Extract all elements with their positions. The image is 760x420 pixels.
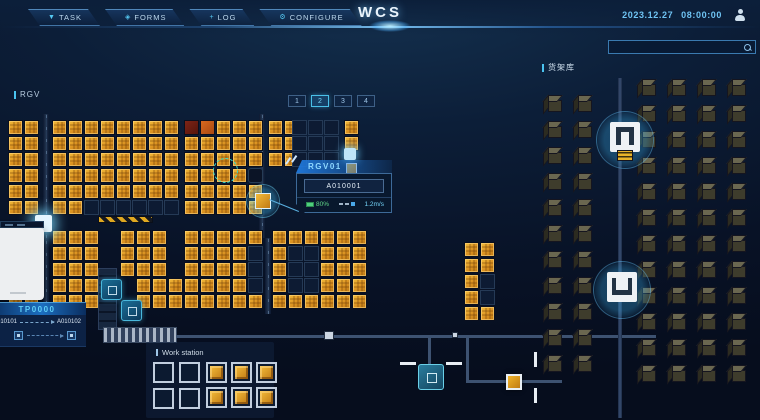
time-text: 08:00:00 <box>681 10 722 20</box>
storage-cell-occupied[interactable] <box>136 246 151 261</box>
shelf-bin <box>642 188 656 200</box>
storage-cell-occupied[interactable] <box>464 242 479 257</box>
storage-cell-occupied[interactable] <box>84 136 99 151</box>
storage-cell-occupied[interactable] <box>68 278 83 293</box>
storage-cell-occupied[interactable] <box>100 184 115 199</box>
shelf-bin <box>642 240 656 252</box>
storage-cell-occupied[interactable] <box>116 136 131 151</box>
shelf-bin <box>548 308 562 320</box>
shelf-bin <box>672 370 686 382</box>
storage-cell-empty[interactable] <box>292 136 307 151</box>
storage-cell-occupied[interactable] <box>24 120 39 135</box>
storage-cell-occupied[interactable] <box>200 230 215 245</box>
workstation-slot-empty[interactable] <box>153 362 174 383</box>
page-button-4[interactable]: 4 <box>357 95 375 107</box>
storage-cell-occupied[interactable] <box>216 120 231 135</box>
shelf-bin <box>732 84 746 96</box>
storage-cell-occupied[interactable] <box>68 262 83 277</box>
storage-cell-occupied[interactable] <box>84 168 99 183</box>
info-card <box>0 228 44 300</box>
storage-cell-occupied[interactable] <box>480 258 495 273</box>
shelf-bin <box>578 256 592 268</box>
shelf-bin <box>702 136 716 148</box>
shelf-bin <box>578 126 592 138</box>
storage-cell-occupied[interactable] <box>304 230 319 245</box>
storage-cell-empty[interactable] <box>248 278 263 293</box>
storage-cell-occupied[interactable] <box>320 278 335 293</box>
map-pagination: 1234 <box>288 95 375 107</box>
storage-cell-alert-orange[interactable] <box>200 120 215 135</box>
station-icon[interactable] <box>67 331 76 340</box>
shelf-bin <box>578 360 592 372</box>
shelf-bin <box>702 292 716 304</box>
storage-cell-occupied[interactable] <box>248 152 263 167</box>
storage-cell-occupied[interactable] <box>272 246 287 261</box>
storage-cell-occupied[interactable] <box>200 278 215 293</box>
storage-cell-occupied[interactable] <box>68 168 83 183</box>
storage-cell-occupied[interactable] <box>52 230 67 245</box>
battery-value: 80% <box>316 201 329 208</box>
shelf-bin <box>548 230 562 242</box>
pallet-device-icon[interactable] <box>506 374 522 390</box>
storage-cell-occupied[interactable] <box>216 230 231 245</box>
storage-cell-occupied[interactable] <box>232 230 247 245</box>
workstation-slot-occupied[interactable] <box>206 387 227 408</box>
storage-cell-occupied[interactable] <box>52 262 67 277</box>
storage-cell-occupied[interactable] <box>164 136 179 151</box>
storage-cell-occupied[interactable] <box>232 184 247 199</box>
storage-cell-empty[interactable] <box>132 200 147 215</box>
log-icon: + <box>209 14 213 21</box>
storage-cell-occupied[interactable] <box>68 200 83 215</box>
storage-cell-occupied[interactable] <box>52 120 67 135</box>
tp-panel: TP0000 A010101 A010102 <box>0 302 86 347</box>
storage-cell-empty[interactable] <box>248 246 263 261</box>
storage-cell-occupied[interactable] <box>200 200 215 215</box>
stacker-lift-icon[interactable] <box>610 122 640 152</box>
mini-device-icon[interactable] <box>344 148 356 160</box>
storage-cell-occupied[interactable] <box>120 230 135 245</box>
storage-cell-occupied[interactable] <box>336 230 351 245</box>
station-icon[interactable] <box>14 331 23 340</box>
boundary-dash <box>534 388 537 403</box>
tp-to: A010102 <box>57 319 81 325</box>
storage-cell-occupied[interactable] <box>8 168 23 183</box>
transfer-device-icon[interactable] <box>121 300 142 321</box>
shelf-area-label: 货架库 <box>542 62 575 73</box>
storage-cell-occupied[interactable] <box>100 120 115 135</box>
storage-cell-occupied[interactable] <box>288 294 303 309</box>
shelf-bin <box>702 370 716 382</box>
rgv-vehicle-icon[interactable] <box>255 193 271 209</box>
storage-cell-occupied[interactable] <box>148 136 163 151</box>
storage-cell-occupied[interactable] <box>52 184 67 199</box>
storage-cell-occupied[interactable] <box>52 136 67 151</box>
rgv-popup-title: RGV01 <box>308 162 342 171</box>
storage-cell-empty[interactable] <box>164 200 179 215</box>
storage-cell-occupied[interactable] <box>100 152 115 167</box>
tab-forms[interactable]: ◈FORMS <box>105 9 184 26</box>
shelf-bin <box>672 214 686 226</box>
storage-cell-occupied[interactable] <box>216 200 231 215</box>
hazard-stripe <box>98 216 153 223</box>
storage-cell-occupied[interactable] <box>132 184 147 199</box>
storage-cell-occupied[interactable] <box>132 136 147 151</box>
battery-indicator: 80% <box>306 201 329 208</box>
shelf-bin <box>732 136 746 148</box>
nav-tabs: ▼TASK◈FORMS+LOG⚙CONFIGURE <box>28 9 362 26</box>
shelf-bin <box>732 162 746 174</box>
storage-cell-occupied[interactable] <box>8 184 23 199</box>
shelf-label-text: 货架库 <box>548 62 575 73</box>
rgv-popup-footer: 80% 1.2m/s <box>297 197 391 212</box>
storage-cell-occupied[interactable] <box>52 278 67 293</box>
shelf-bin <box>548 126 562 138</box>
rgv-area-label: RGV <box>14 90 40 99</box>
storage-cell-empty[interactable] <box>288 262 303 277</box>
station-side-bar <box>446 362 462 365</box>
user-icon[interactable] <box>734 9 746 21</box>
filter-icon: ▼ <box>48 14 55 21</box>
storage-cell-occupied[interactable] <box>116 184 131 199</box>
shelf-bin <box>672 292 686 304</box>
shelf-bin <box>548 178 562 190</box>
workstation-label: Work station <box>156 348 204 357</box>
storage-cell-occupied[interactable] <box>216 294 231 309</box>
storage-cell-occupied[interactable] <box>464 306 479 321</box>
storage-cell-occupied[interactable] <box>336 278 351 293</box>
shelf-bin <box>548 334 562 346</box>
battery-icon <box>306 202 314 207</box>
storage-cell-blocked[interactable] <box>248 168 263 183</box>
storage-cell-occupied[interactable] <box>344 120 359 135</box>
storage-cell-occupied[interactable] <box>84 262 99 277</box>
storage-cell-occupied[interactable] <box>320 294 335 309</box>
route-arrow <box>27 335 63 336</box>
storage-cell-occupied[interactable] <box>200 262 215 277</box>
storage-cell-occupied[interactable] <box>164 120 179 135</box>
storage-cell-occupied[interactable] <box>116 168 131 183</box>
storage-cell-occupied[interactable] <box>68 184 83 199</box>
storage-cell-occupied[interactable] <box>120 262 135 277</box>
storage-cell-occupied[interactable] <box>464 274 479 289</box>
storage-cell-occupied[interactable] <box>320 246 335 261</box>
storage-cell-occupied[interactable] <box>116 120 131 135</box>
storage-cell-occupied[interactable] <box>52 200 67 215</box>
shelf-bin <box>642 344 656 356</box>
storage-cell-occupied[interactable] <box>84 294 99 309</box>
shelf-bin <box>732 344 746 356</box>
workstation-label-text: Work station <box>162 348 204 357</box>
storage-cell-occupied[interactable] <box>116 152 131 167</box>
storage-cell-empty[interactable] <box>324 136 339 151</box>
storage-cell-occupied[interactable] <box>68 120 83 135</box>
shelf-bin <box>672 266 686 278</box>
stacker-lift-icon[interactable] <box>607 272 637 302</box>
storage-cell-occupied[interactable] <box>84 120 99 135</box>
storage-cell-occupied[interactable] <box>352 230 367 245</box>
storage-cell-occupied[interactable] <box>8 152 23 167</box>
storage-cell-occupied[interactable] <box>24 136 39 151</box>
storage-cell-occupied[interactable] <box>352 262 367 277</box>
shelf-bin <box>578 204 592 216</box>
storage-cell-empty[interactable] <box>292 120 307 135</box>
storage-cell-occupied[interactable] <box>136 278 151 293</box>
shelf-bin <box>672 318 686 330</box>
transfer-device-icon[interactable] <box>101 279 122 300</box>
storage-cell-occupied[interactable] <box>164 152 179 167</box>
wcs-dashboard: WCS ▼TASK◈FORMS+LOG⚙CONFIGURE 2023.12.27… <box>0 0 760 420</box>
tp-panel-title: TP0000 <box>18 305 55 314</box>
storage-cell-empty[interactable] <box>308 120 323 135</box>
storage-cell-occupied[interactable] <box>8 120 23 135</box>
storage-cell-occupied[interactable] <box>272 278 287 293</box>
storage-cell-occupied[interactable] <box>148 184 163 199</box>
shelf-bin <box>702 110 716 122</box>
storage-cell-occupied[interactable] <box>336 262 351 277</box>
storage-cell-occupied[interactable] <box>68 152 83 167</box>
storage-cell-occupied[interactable] <box>84 230 99 245</box>
storage-cell-occupied[interactable] <box>24 184 39 199</box>
storage-cell-occupied[interactable] <box>52 152 67 167</box>
page-button-2[interactable]: 2 <box>311 95 329 107</box>
storage-cell-occupied[interactable] <box>268 120 283 135</box>
storage-cell-empty[interactable] <box>480 290 495 305</box>
route-arrow <box>20 322 54 323</box>
shelf-bin <box>702 240 716 252</box>
page-button-1[interactable]: 1 <box>288 95 306 107</box>
shelf-bin <box>642 318 656 330</box>
storage-cell-occupied[interactable] <box>8 200 23 215</box>
shelf-bin <box>642 214 656 226</box>
shelf-bin <box>702 266 716 278</box>
storage-cell-occupied[interactable] <box>84 278 99 293</box>
tab-task[interactable]: ▼TASK <box>28 9 100 26</box>
storage-cell-occupied[interactable] <box>184 200 199 215</box>
storage-cell-occupied[interactable] <box>272 262 287 277</box>
storage-cell-occupied[interactable] <box>232 136 247 151</box>
boundary-dash <box>534 352 537 367</box>
storage-cell-occupied[interactable] <box>24 152 39 167</box>
storage-cell-occupied[interactable] <box>100 168 115 183</box>
shelf-bin <box>702 318 716 330</box>
storage-cell-empty[interactable] <box>288 278 303 293</box>
storage-cell-empty[interactable] <box>248 262 263 277</box>
storage-cell-occupied[interactable] <box>84 246 99 261</box>
shelf-bin <box>642 370 656 382</box>
storage-cell-occupied[interactable] <box>232 278 247 293</box>
shelf-bin <box>702 214 716 226</box>
search-bar <box>608 40 756 54</box>
storage-cell-occupied[interactable] <box>152 230 167 245</box>
storage-cell-occupied[interactable] <box>216 278 231 293</box>
storage-cell-occupied[interactable] <box>200 184 215 199</box>
shelf-bin <box>672 110 686 122</box>
storage-cell-occupied[interactable] <box>336 246 351 261</box>
shelf-bin <box>732 370 746 382</box>
storage-cell-occupied[interactable] <box>464 258 479 273</box>
storage-cell-occupied[interactable] <box>352 246 367 261</box>
storage-cell-occupied[interactable] <box>248 136 263 151</box>
storage-cell-occupied[interactable] <box>8 136 23 151</box>
storage-cell-occupied[interactable] <box>168 278 183 293</box>
storage-cell-occupied[interactable] <box>216 184 231 199</box>
storage-cell-occupied[interactable] <box>352 278 367 293</box>
tp-panel-header: TP0000 <box>0 302 86 315</box>
storage-cell-empty[interactable] <box>308 136 323 151</box>
storage-cell-occupied[interactable] <box>216 262 231 277</box>
shelf-bin <box>702 188 716 200</box>
storage-cell-occupied[interactable] <box>184 278 199 293</box>
storage-cell-occupied[interactable] <box>136 262 151 277</box>
storage-cell-occupied[interactable] <box>184 294 199 309</box>
storage-cell-occupied[interactable] <box>216 136 231 151</box>
storage-cell-occupied[interactable] <box>152 278 167 293</box>
storage-cell-occupied[interactable] <box>184 246 199 261</box>
storage-cell-occupied[interactable] <box>268 152 283 167</box>
datetime: 2023.12.27 08:00:00 <box>622 10 722 20</box>
storage-cell-occupied[interactable] <box>164 168 179 183</box>
shelf-bin <box>578 152 592 164</box>
storage-cell-alert-red[interactable] <box>184 120 199 135</box>
storage-cell-occupied[interactable] <box>68 136 83 151</box>
storage-cell-occupied[interactable] <box>84 184 99 199</box>
storage-cell-occupied[interactable] <box>272 230 287 245</box>
storage-cell-occupied[interactable] <box>304 294 319 309</box>
storage-cell-occupied[interactable] <box>232 262 247 277</box>
search-input[interactable] <box>609 41 744 53</box>
storage-cell-occupied[interactable] <box>184 262 199 277</box>
storage-cell-occupied[interactable] <box>200 136 215 151</box>
storage-cell-occupied[interactable] <box>100 136 115 151</box>
shelf-bin <box>732 292 746 304</box>
storage-cell-empty[interactable] <box>304 278 319 293</box>
shelf-bin <box>642 84 656 96</box>
shelf-bin <box>548 282 562 294</box>
storage-cell-empty[interactable] <box>304 246 319 261</box>
storage-cell-occupied[interactable] <box>336 294 351 309</box>
page-button-3[interactable]: 3 <box>334 95 352 107</box>
storage-cell-occupied[interactable] <box>248 230 263 245</box>
storage-cell-occupied[interactable] <box>168 294 183 309</box>
storage-cell-occupied[interactable] <box>268 136 283 151</box>
storage-cell-occupied[interactable] <box>24 168 39 183</box>
storage-cell-occupied[interactable] <box>200 294 215 309</box>
gear-icon: ⚙ <box>279 14 285 21</box>
storage-cell-occupied[interactable] <box>52 168 67 183</box>
storage-cell-occupied[interactable] <box>132 120 147 135</box>
conveyor-node[interactable] <box>324 331 334 340</box>
storage-cell-occupied[interactable] <box>148 168 163 183</box>
storage-cell-occupied[interactable] <box>132 168 147 183</box>
storage-cell-occupied[interactable] <box>320 262 335 277</box>
storage-cell-occupied[interactable] <box>272 294 287 309</box>
shelf-bin <box>548 100 562 112</box>
storage-cell-occupied[interactable] <box>136 230 151 245</box>
workstation-slot-occupied[interactable] <box>231 362 252 383</box>
conveyor-node[interactable] <box>452 332 458 338</box>
storage-cell-empty[interactable] <box>84 200 99 215</box>
shelf-bin <box>732 188 746 200</box>
shelf-bin <box>672 84 686 96</box>
storage-cell-occupied[interactable] <box>152 262 167 277</box>
storage-cell-empty[interactable] <box>100 200 115 215</box>
storage-cell-occupied[interactable] <box>148 152 163 167</box>
storage-cell-occupied[interactable] <box>200 246 215 261</box>
storage-cell-occupied[interactable] <box>68 230 83 245</box>
workstation-slot-empty[interactable] <box>153 388 174 409</box>
storage-cell-occupied[interactable] <box>184 152 199 167</box>
storage-cell-empty[interactable] <box>304 262 319 277</box>
search-icon[interactable] <box>744 44 751 51</box>
speed-value: 1.2m/s <box>364 201 384 208</box>
workstation-slot-occupied[interactable] <box>256 387 277 408</box>
storage-cell-occupied[interactable] <box>184 136 199 151</box>
storage-cell-occupied[interactable] <box>288 230 303 245</box>
storage-cell-occupied[interactable] <box>84 152 99 167</box>
storage-cell-occupied[interactable] <box>480 242 495 257</box>
storage-cell-empty[interactable] <box>324 120 339 135</box>
storage-cell-occupied[interactable] <box>232 246 247 261</box>
conveyor-drop-line <box>428 338 431 365</box>
storage-cell-occupied[interactable] <box>480 306 495 321</box>
storage-cell-empty[interactable] <box>288 246 303 261</box>
storage-cell-occupied[interactable] <box>148 120 163 135</box>
storage-cell-occupied[interactable] <box>164 184 179 199</box>
shelf-bin <box>548 256 562 268</box>
storage-cell-occupied[interactable] <box>68 246 83 261</box>
storage-cell-occupied[interactable] <box>464 290 479 305</box>
tp-route-row: A010101 A010102 <box>0 315 86 327</box>
workstation-slot-occupied[interactable] <box>231 387 252 408</box>
storage-cell-occupied[interactable] <box>232 120 247 135</box>
shelf-bin <box>578 334 592 346</box>
storage-cell-occupied[interactable] <box>248 294 263 309</box>
storage-cell-occupied[interactable] <box>184 230 199 245</box>
tab-log[interactable]: +LOG <box>189 9 254 26</box>
storage-cell-occupied[interactable] <box>320 230 335 245</box>
conveyor-branch-vertical <box>466 338 469 383</box>
storage-cell-occupied[interactable] <box>52 246 67 261</box>
storage-cell-occupied[interactable] <box>232 200 247 215</box>
storage-cell-occupied[interactable] <box>352 294 367 309</box>
storage-cell-occupied[interactable] <box>152 246 167 261</box>
storage-cell-occupied[interactable] <box>184 184 199 199</box>
shelf-bin <box>578 178 592 190</box>
storage-cell-occupied[interactable] <box>216 246 231 261</box>
storage-cell-occupied[interactable] <box>132 152 147 167</box>
storage-cell-empty[interactable] <box>480 274 495 289</box>
workstation-slot-empty[interactable] <box>179 362 200 383</box>
aisle-rail <box>265 238 271 314</box>
storage-cell-occupied[interactable] <box>24 200 39 215</box>
tab-configure[interactable]: ⚙CONFIGURE <box>259 9 361 26</box>
workstation-slot-empty[interactable] <box>179 388 200 409</box>
storage-cell-occupied[interactable] <box>152 294 167 309</box>
workstation-slot-occupied[interactable] <box>256 362 277 383</box>
storage-cell-occupied[interactable] <box>200 152 215 167</box>
storage-cell-empty[interactable] <box>148 200 163 215</box>
storage-cell-occupied[interactable] <box>120 246 135 261</box>
shelf-bin <box>702 344 716 356</box>
shelf-bin <box>578 282 592 294</box>
storage-cell-occupied[interactable] <box>232 294 247 309</box>
workstation-slot-occupied[interactable] <box>206 362 227 383</box>
storage-cell-occupied[interactable] <box>248 120 263 135</box>
sorter-device-icon[interactable] <box>418 364 444 390</box>
storage-cell-occupied[interactable] <box>184 168 199 183</box>
storage-cell-empty[interactable] <box>116 200 131 215</box>
